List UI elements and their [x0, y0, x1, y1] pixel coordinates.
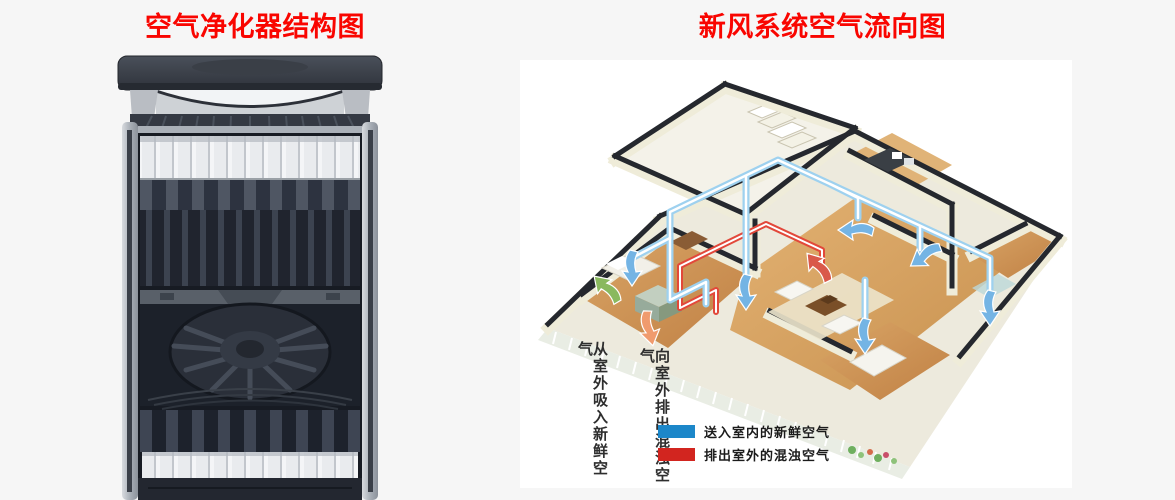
legend-label-exhaust-air: 排出室外的混浊空气 [704, 445, 830, 464]
purifier-carbon-filter-bottom [140, 410, 360, 452]
purifier-bracket [140, 290, 360, 304]
legend-label-fresh-air: 送入室内的新鲜空气 [704, 422, 830, 441]
label-intake-fresh-air: 从室外吸入新鲜空气 [577, 341, 607, 488]
infographic-canvas: 空气净化器结构图 新风系统空气流向图 [0, 0, 1175, 500]
label-exhaust-air: 向室外排出混浊空气 [639, 348, 669, 488]
purifier-carbon-filter-top [140, 180, 360, 210]
exhaust-air-swatch [658, 448, 695, 461]
fresh-air-swatch [658, 425, 695, 438]
legend-item-exhaust-air: 排出室外的混浊空气 [658, 445, 830, 464]
purifier-structure-title: 空气净化器结构图 [90, 5, 420, 44]
legend-item-fresh-air: 送入室内的新鲜空气 [658, 422, 830, 441]
fresh-air-system-figure: 从室外吸入新鲜空气 向室外排出混浊空气 送入室内的新鲜空气 排出室外的混浊空气 [520, 60, 1072, 488]
purifier-air-outlet [130, 90, 370, 118]
airflow-legend: 送入室内的新鲜空气 排出室外的混浊空气 [658, 422, 830, 464]
purifier-centrifugal-fan [140, 304, 360, 409]
purifier-hepa-filter-top [140, 136, 360, 180]
fresh-air-flow-title: 新风系统空气流向图 [655, 5, 990, 44]
air-purifier-cutaway-figure [100, 52, 400, 500]
purifier-base [138, 478, 362, 500]
purifier-slat-filter [140, 210, 360, 286]
purifier-top-cap [118, 56, 382, 90]
purifier-hepa-filter-bottom [142, 452, 358, 478]
